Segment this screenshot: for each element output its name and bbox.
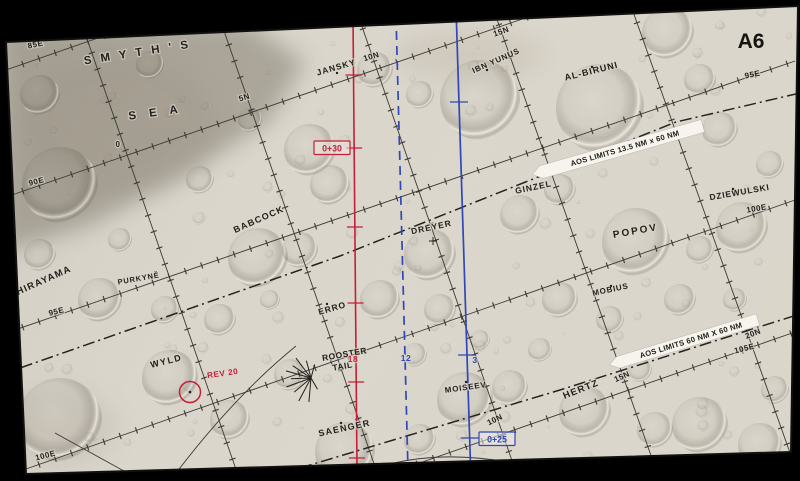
time-label-0-30: 0+30 xyxy=(322,143,342,153)
crater-position-dot xyxy=(732,188,734,190)
label-18: 18 xyxy=(348,354,358,364)
crater-position-dot xyxy=(610,285,612,287)
crater-position-dot xyxy=(326,303,328,305)
crater-position-dot xyxy=(486,69,488,71)
crater-position-dot xyxy=(336,72,338,74)
crater-position-dot xyxy=(465,381,467,383)
crater-position-dot xyxy=(591,66,593,68)
label-3: 3 xyxy=(472,355,477,365)
label-0: 0 xyxy=(116,140,121,149)
time-label-0-25: 0+25 xyxy=(487,434,507,444)
label-12: 12 xyxy=(401,353,411,363)
crater-position-dot xyxy=(340,422,342,424)
sheet-label: A6 xyxy=(738,30,765,53)
lunar-chart-svg: AOS LIMITS 13.5 NM x 60 NMAOS LIMITS 60 … xyxy=(0,0,800,481)
lunar-chart-page: AOS LIMITS 13.5 NM x 60 NMAOS LIMITS 60 … xyxy=(0,0,800,481)
map-photo-area: AOS LIMITS 13.5 NM x 60 NMAOS LIMITS 60 … xyxy=(0,0,800,481)
